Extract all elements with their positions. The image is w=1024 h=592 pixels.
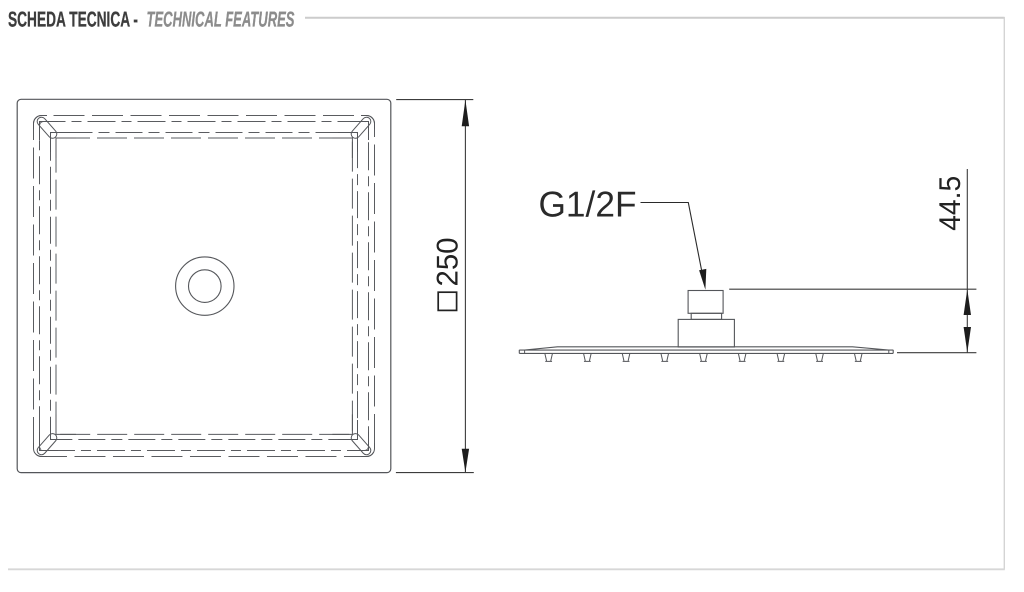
svg-text:250: 250: [432, 238, 465, 287]
svg-text:44.5: 44.5: [934, 176, 967, 231]
svg-text:SCHEDA TECNICA -: SCHEDA TECNICA -: [8, 7, 138, 31]
svg-text:TECHNICAL FEATURES: TECHNICAL FEATURES: [147, 7, 295, 31]
svg-text:G1/2F: G1/2F: [539, 183, 637, 224]
